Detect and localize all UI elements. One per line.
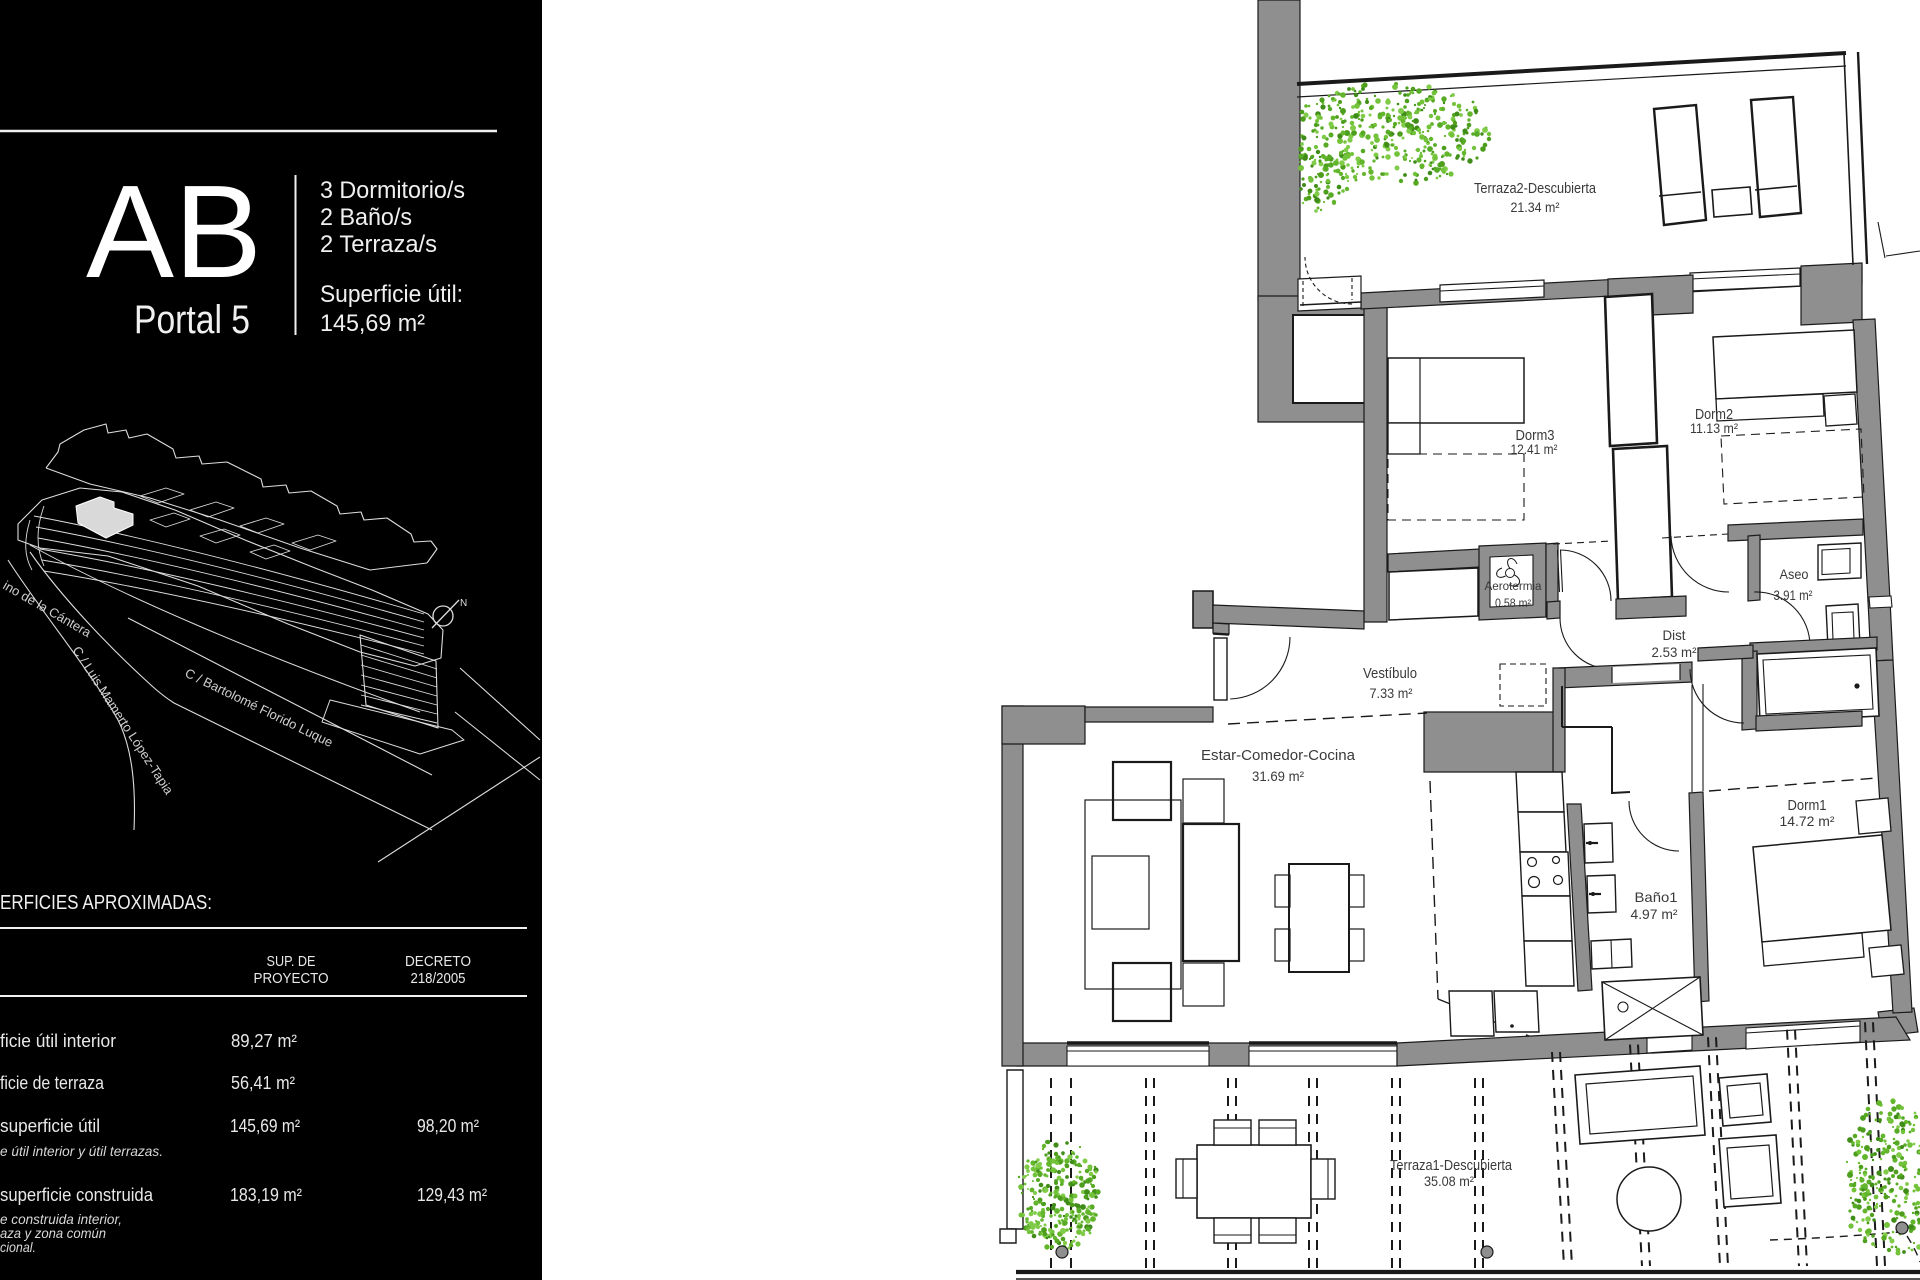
svg-text:cional.: cional. <box>0 1239 36 1255</box>
svg-text:Estar-Comedor-Cocina: Estar-Comedor-Cocina <box>1201 747 1356 764</box>
svg-text:AB: AB <box>86 158 262 305</box>
svg-text:Dist: Dist <box>1663 627 1686 643</box>
svg-text:Portal 5: Portal 5 <box>134 298 250 342</box>
svg-text:3.91 m²: 3.91 m² <box>1774 588 1813 603</box>
svg-text:12.41 m²: 12.41 m² <box>1511 441 1558 457</box>
svg-text:Aerotermia: Aerotermia <box>1485 581 1543 593</box>
svg-text:0.58 m²: 0.58 m² <box>1495 598 1531 610</box>
svg-text:e útil interior y útil terraza: e útil interior y útil terrazas. <box>0 1143 163 1159</box>
svg-text:superficie útil: superficie útil <box>0 1116 100 1136</box>
svg-text:Vestíbulo: Vestíbulo <box>1363 665 1417 682</box>
svg-text:Superficie útil:: Superficie útil: <box>320 281 463 308</box>
svg-text:35.08 m²: 35.08 m² <box>1424 1173 1474 1189</box>
svg-text:31.69 m²: 31.69 m² <box>1252 768 1304 784</box>
svg-text:Terraza2-Descubierta: Terraza2-Descubierta <box>1474 180 1597 197</box>
svg-text:DECRETO: DECRETO <box>405 953 471 970</box>
svg-text:Baño1: Baño1 <box>1635 889 1678 905</box>
svg-text:ficie útil interior: ficie útil interior <box>0 1031 116 1051</box>
svg-text:PROYECTO: PROYECTO <box>254 970 329 987</box>
svg-text:2.53 m²: 2.53 m² <box>1652 645 1697 660</box>
svg-text:89,27 m²: 89,27 m² <box>231 1031 297 1051</box>
svg-text:183,19 m²: 183,19 m² <box>230 1185 302 1205</box>
svg-text:superficie construida: superficie construida <box>0 1185 154 1205</box>
svg-text:14.72 m²: 14.72 m² <box>1780 813 1835 829</box>
svg-text:145,69 m²: 145,69 m² <box>320 310 425 337</box>
svg-text:98,20 m²: 98,20 m² <box>417 1116 479 1136</box>
svg-text:SUP. DE: SUP. DE <box>267 953 316 970</box>
svg-text:145,69 m²: 145,69 m² <box>230 1116 300 1136</box>
svg-text:4.97 m²: 4.97 m² <box>1631 906 1678 922</box>
svg-text:N: N <box>460 598 467 609</box>
svg-text:21.34 m²: 21.34 m² <box>1511 199 1560 215</box>
svg-text:129,43 m²: 129,43 m² <box>417 1185 487 1205</box>
svg-text:11.13 m²: 11.13 m² <box>1690 420 1738 436</box>
svg-text:2 Terraza/s: 2 Terraza/s <box>320 231 437 258</box>
svg-text:218/2005: 218/2005 <box>411 970 466 987</box>
svg-text:7.33 m²: 7.33 m² <box>1370 685 1413 701</box>
svg-text:ERFICIES APROXIMADAS:: ERFICIES APROXIMADAS: <box>0 892 212 914</box>
svg-text:ficie de terraza: ficie de terraza <box>0 1073 105 1093</box>
svg-text:Terraza1-Descubierta: Terraza1-Descubierta <box>1390 1157 1513 1174</box>
svg-text:Dorm1: Dorm1 <box>1788 797 1827 814</box>
svg-text:3 Dormitorio/s: 3 Dormitorio/s <box>320 177 465 204</box>
svg-text:2 Baño/s: 2 Baño/s <box>320 204 412 231</box>
svg-text:Aseo: Aseo <box>1780 566 1809 582</box>
svg-text:56,41 m²: 56,41 m² <box>231 1073 295 1093</box>
